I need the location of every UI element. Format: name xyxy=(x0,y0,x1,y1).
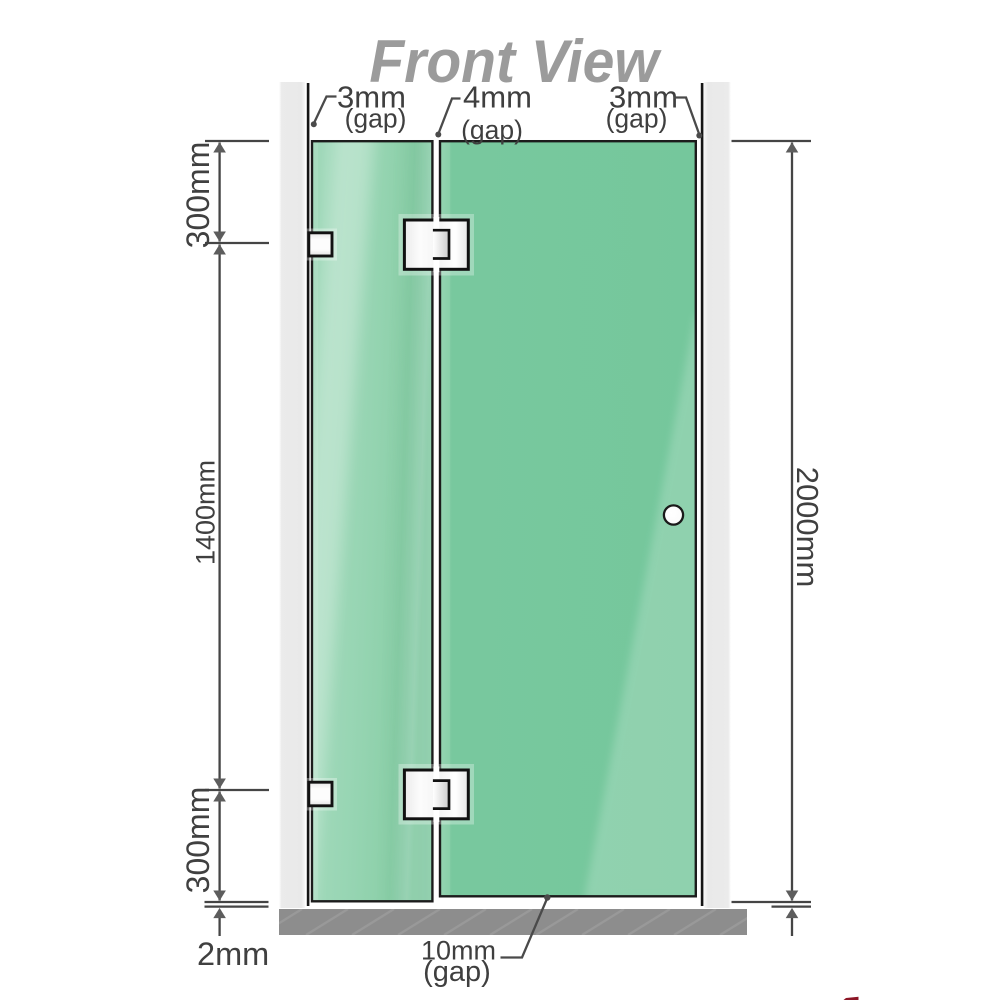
svg-text:(gap): (gap) xyxy=(345,104,407,134)
svg-text:2000mm: 2000mm xyxy=(790,467,825,588)
svg-text:4mm: 4mm xyxy=(463,80,532,115)
svg-text:(gap): (gap) xyxy=(606,104,668,134)
svg-text:(gap): (gap) xyxy=(423,956,491,988)
svg-text:300mm: 300mm xyxy=(180,787,216,894)
svg-text:2mm: 2mm xyxy=(197,936,269,972)
svg-text:(gap): (gap) xyxy=(461,115,523,145)
svg-text:300mm: 300mm xyxy=(180,142,216,249)
svg-text:1400mm: 1400mm xyxy=(191,460,221,565)
